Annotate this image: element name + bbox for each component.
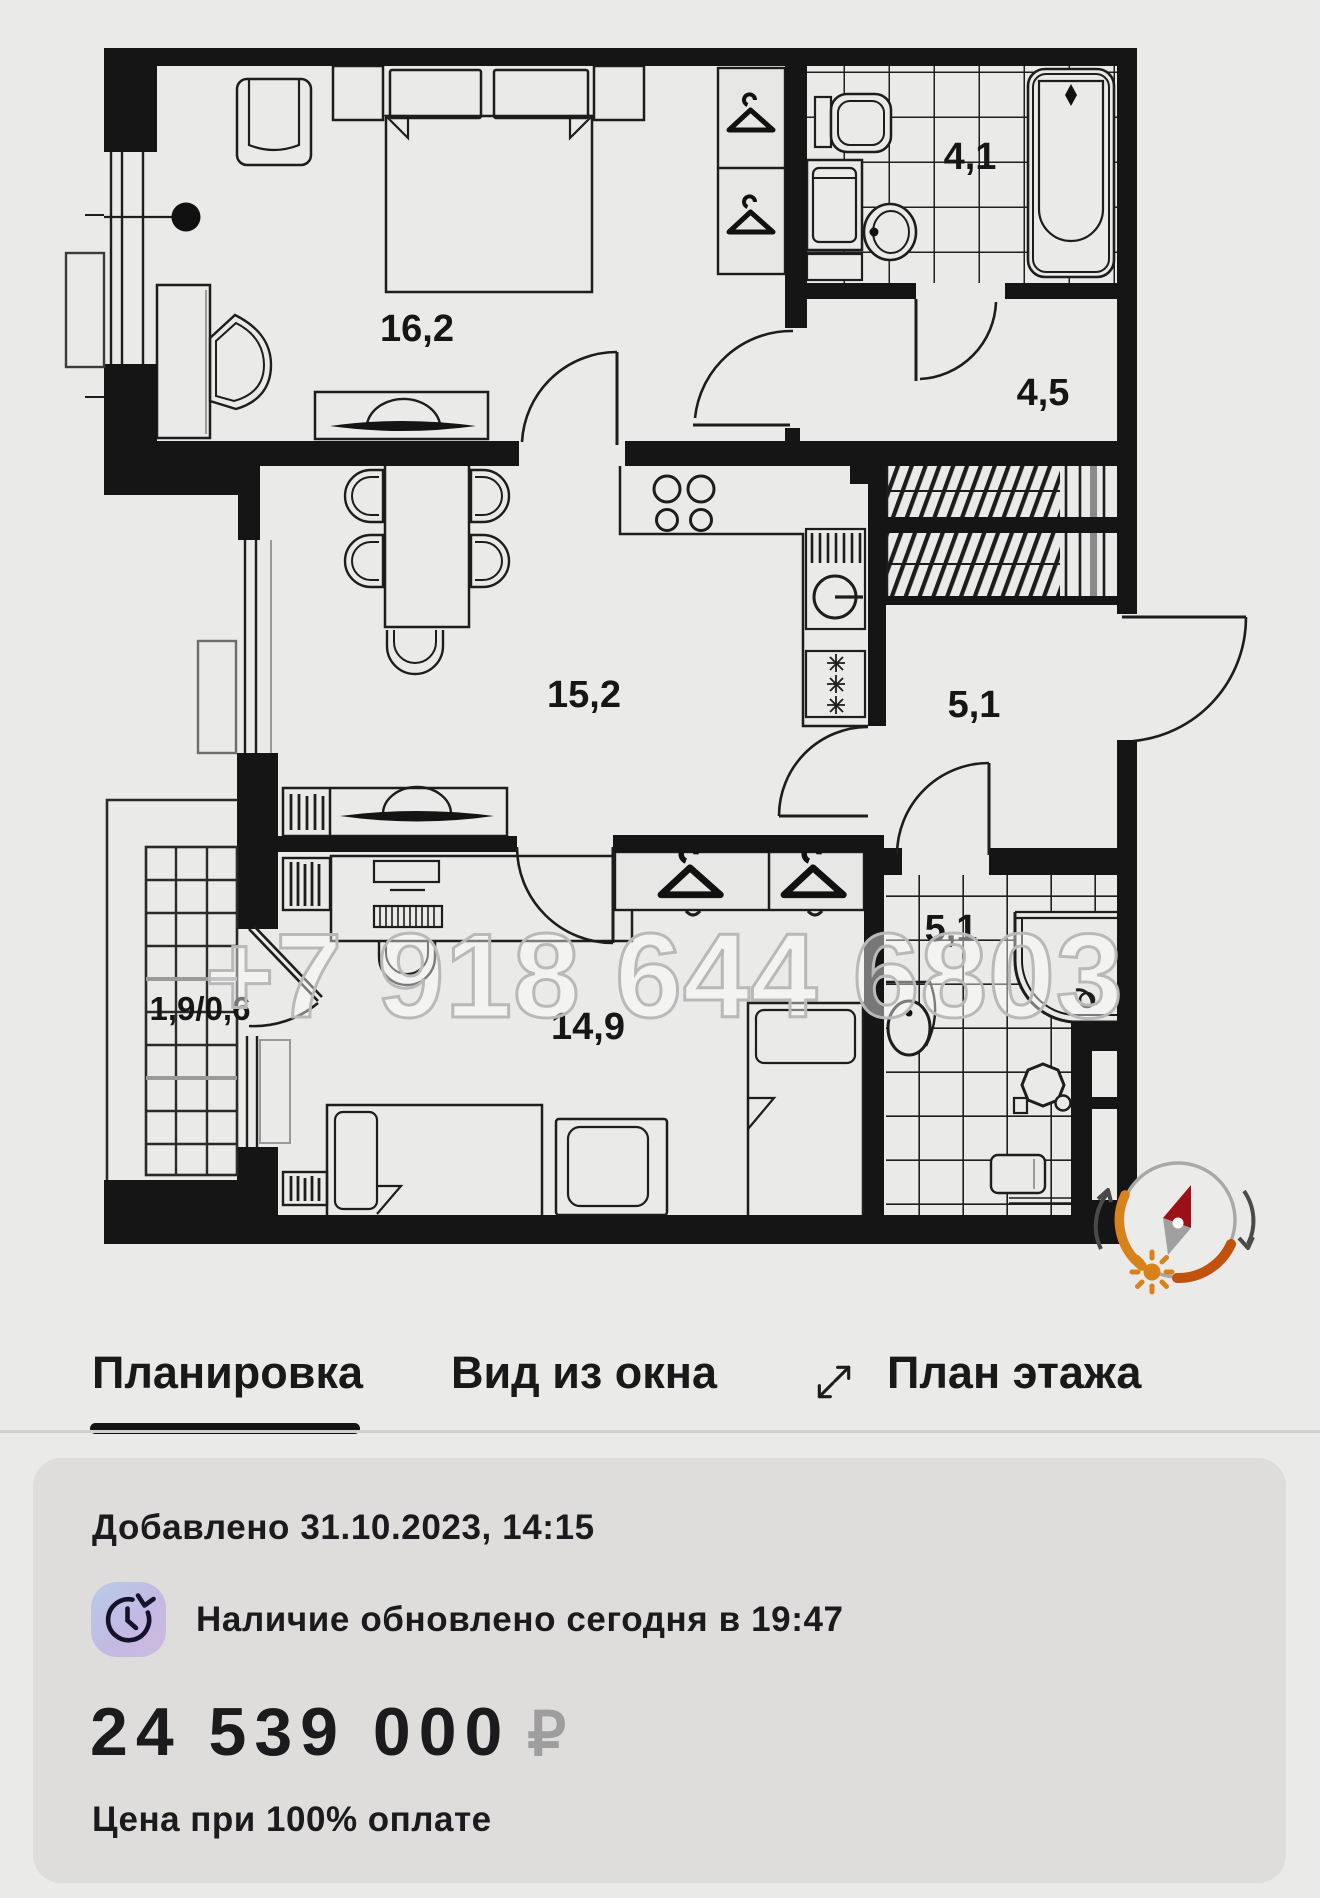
svg-text:16,2: 16,2 xyxy=(380,308,454,350)
svg-text:+7 918 644 6803: +7 918 644 6803 xyxy=(204,909,1123,1043)
svg-text:4,1: 4,1 xyxy=(944,136,997,178)
svg-text:4,5: 4,5 xyxy=(1017,372,1070,414)
svg-text:15,2: 15,2 xyxy=(547,674,621,716)
svg-text:5,1: 5,1 xyxy=(948,684,1001,726)
